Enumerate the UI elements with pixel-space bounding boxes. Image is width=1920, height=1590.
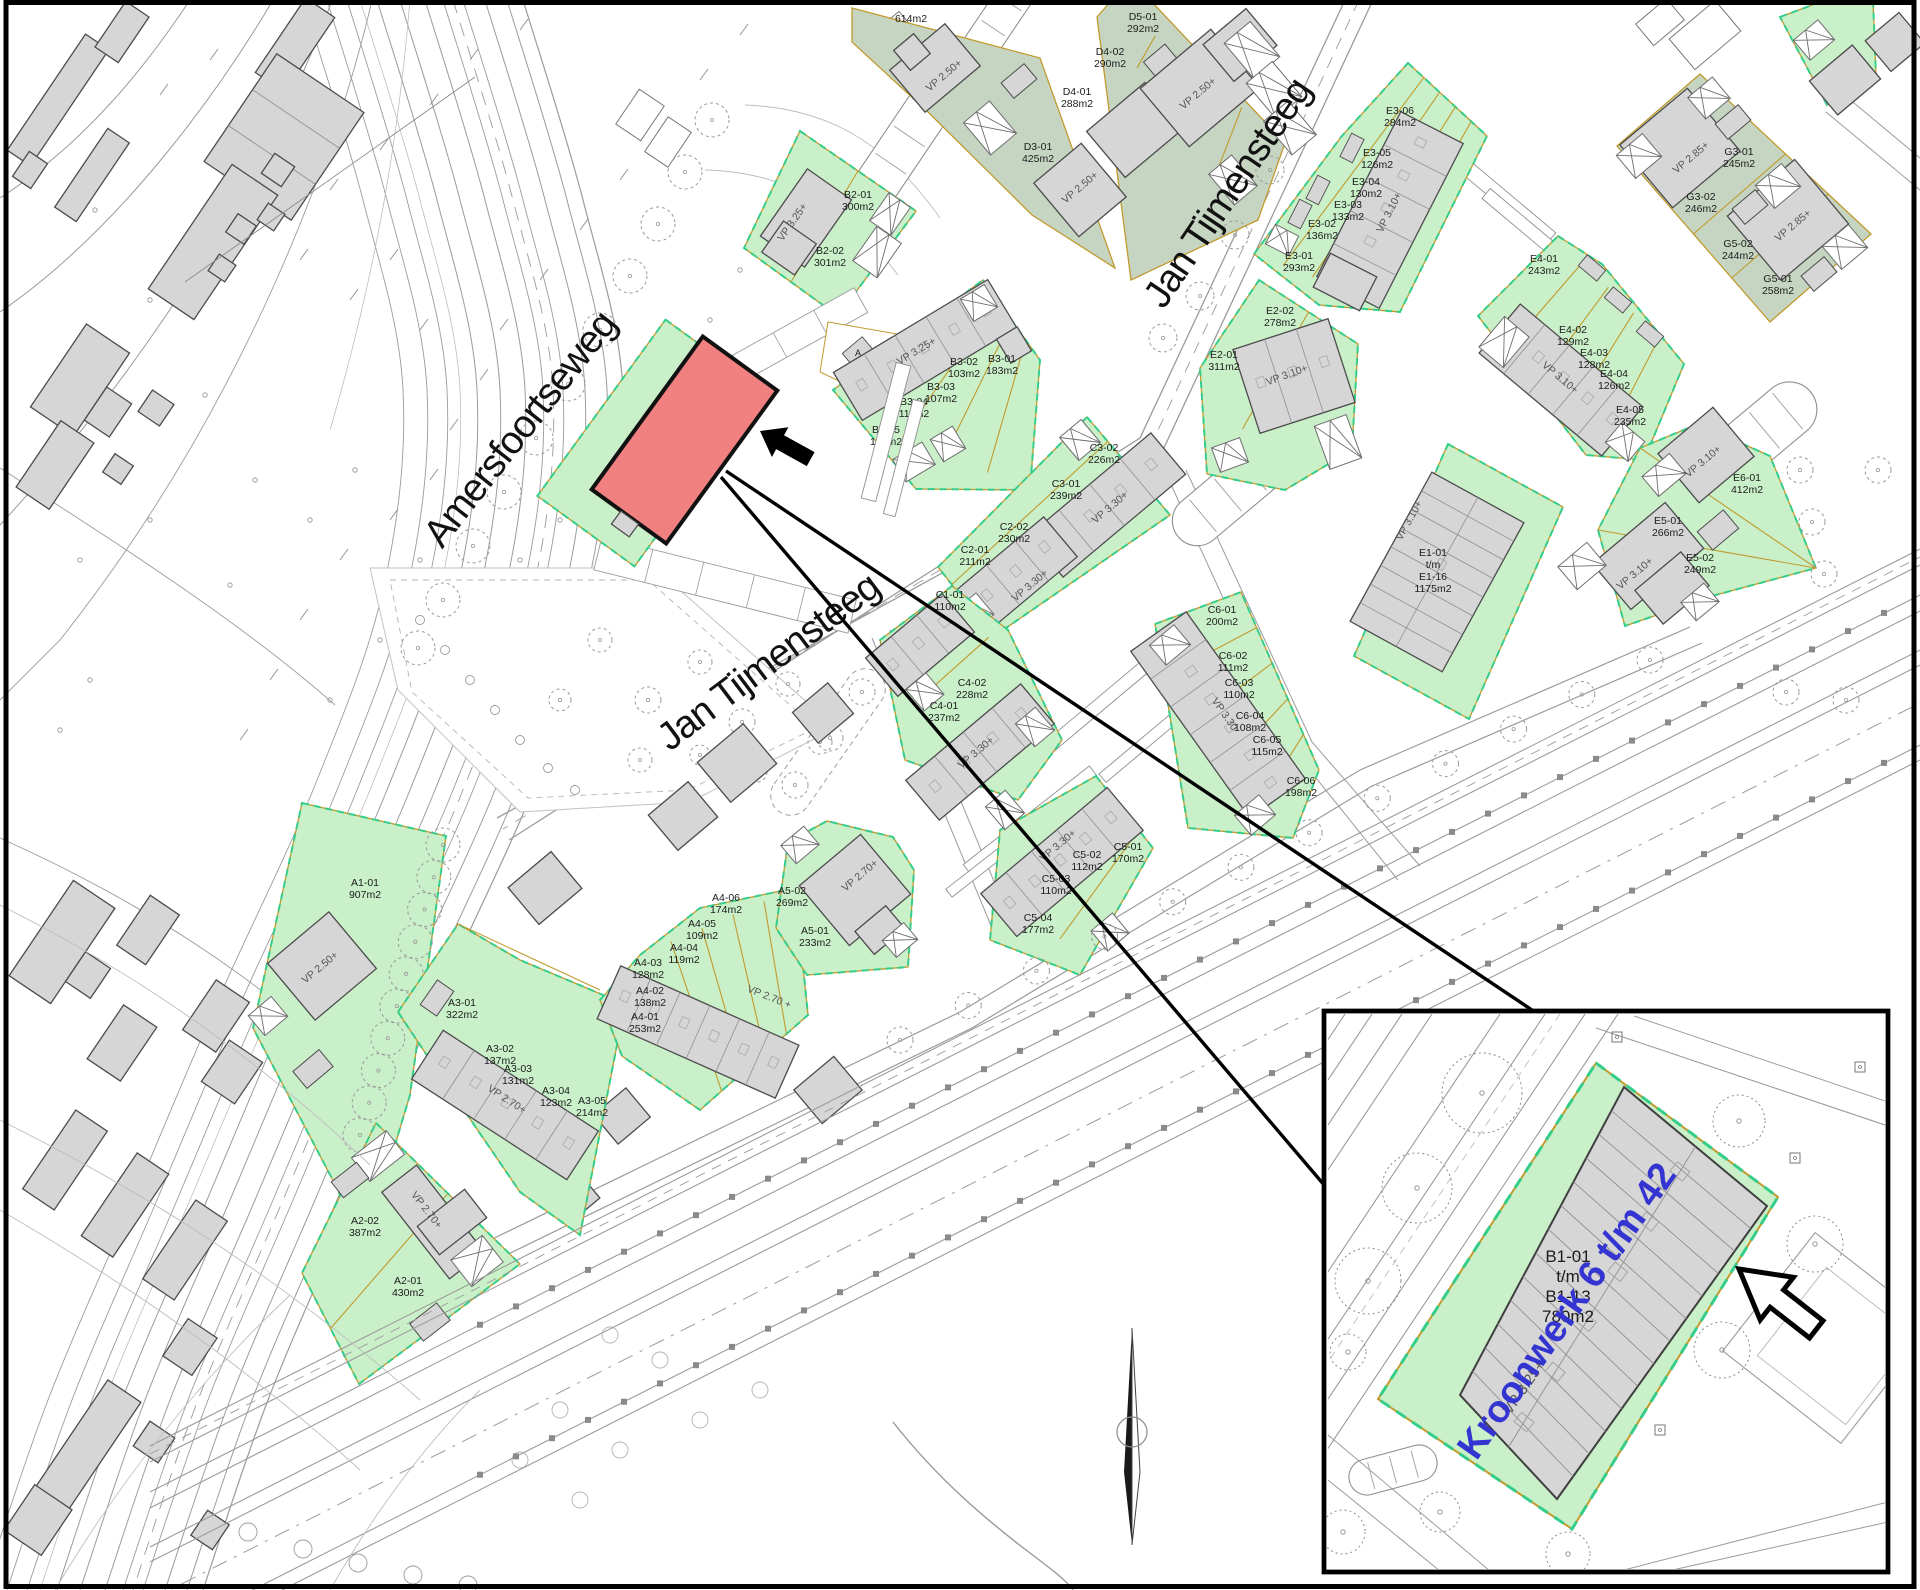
- svg-text:110m2: 110m2: [1040, 885, 1071, 897]
- svg-text:E4-01: E4-01: [1530, 253, 1558, 265]
- svg-text:C6-01: C6-01: [1208, 604, 1237, 616]
- svg-text:E3-04: E3-04: [1352, 176, 1380, 188]
- svg-text:110m2: 110m2: [934, 601, 965, 613]
- svg-text:B2-01: B2-01: [844, 189, 872, 201]
- svg-text:288m2: 288m2: [1061, 98, 1093, 110]
- svg-text:A2-02: A2-02: [351, 1215, 379, 1227]
- svg-text:237m2: 237m2: [928, 712, 960, 724]
- svg-text:A3-04: A3-04: [542, 1085, 570, 1097]
- svg-text:E3-06: E3-06: [1386, 105, 1414, 117]
- svg-text:292m2: 292m2: [1127, 23, 1159, 35]
- svg-text:A3-02: A3-02: [486, 1043, 514, 1055]
- svg-text:C6-04: C6-04: [1236, 710, 1265, 722]
- svg-text:B3-02: B3-02: [950, 356, 978, 368]
- svg-text:425m2: 425m2: [1022, 153, 1054, 165]
- svg-text:C4-01: C4-01: [930, 700, 959, 712]
- svg-text:A5-02: A5-02: [778, 885, 806, 897]
- svg-text:E3-02: E3-02: [1308, 218, 1336, 230]
- svg-text:226m2: 226m2: [1088, 454, 1120, 466]
- svg-text:C3-01: C3-01: [1052, 478, 1081, 490]
- svg-text:115m2: 115m2: [1251, 746, 1282, 758]
- svg-text:136m2: 136m2: [1306, 230, 1338, 242]
- svg-text:A3-03: A3-03: [504, 1063, 532, 1075]
- svg-text:D5-01: D5-01: [1129, 11, 1158, 23]
- svg-text:126m2: 126m2: [1361, 159, 1393, 171]
- svg-text:A3-01: A3-01: [448, 997, 476, 1009]
- svg-text:G5-02: G5-02: [1723, 238, 1752, 250]
- svg-text:107m2: 107m2: [925, 393, 957, 405]
- svg-text:E5-02: E5-02: [1686, 552, 1714, 564]
- svg-text:A3-05: A3-05: [578, 1095, 606, 1107]
- svg-text:C6-02: C6-02: [1219, 650, 1248, 662]
- svg-text:412m2: 412m2: [1731, 484, 1763, 496]
- svg-text:174m2: 174m2: [710, 904, 742, 916]
- svg-text:C5-02: C5-02: [1073, 849, 1102, 861]
- svg-text:A4-04: A4-04: [670, 942, 698, 954]
- svg-text:311m2: 311m2: [1208, 361, 1239, 373]
- svg-text:214m2: 214m2: [576, 1107, 608, 1119]
- svg-text:243m2: 243m2: [1528, 265, 1560, 277]
- svg-text:A4-06: A4-06: [712, 892, 740, 904]
- svg-text:245m2: 245m2: [1723, 158, 1755, 170]
- svg-text:128m2: 128m2: [632, 969, 664, 981]
- svg-text:D4-01: D4-01: [1063, 86, 1092, 98]
- svg-text:E4-05: E4-05: [1616, 404, 1644, 416]
- svg-text:249m2: 249m2: [1684, 564, 1716, 576]
- svg-text:228m2: 228m2: [956, 689, 988, 701]
- svg-text:C5-04: C5-04: [1024, 912, 1053, 924]
- svg-text:322m2: 322m2: [446, 1009, 478, 1021]
- svg-text:G3-02: G3-02: [1686, 191, 1715, 203]
- svg-text:A4-02: A4-02: [636, 985, 664, 997]
- svg-text:290m2: 290m2: [1094, 58, 1126, 70]
- svg-text:C2-02: C2-02: [1000, 521, 1029, 533]
- svg-text:269m2: 269m2: [776, 897, 808, 909]
- svg-text:A5-01: A5-01: [801, 925, 829, 937]
- svg-text:A4-03: A4-03: [634, 957, 662, 969]
- svg-text:E3-03: E3-03: [1334, 199, 1362, 211]
- svg-text:133m2: 133m2: [1332, 211, 1364, 223]
- svg-text:E1-01: E1-01: [1419, 547, 1447, 559]
- svg-text:266m2: 266m2: [1652, 527, 1684, 539]
- svg-text:301m2: 301m2: [814, 257, 846, 269]
- svg-text:278m2: 278m2: [1264, 317, 1296, 329]
- svg-text:235m2: 235m2: [1614, 416, 1646, 428]
- svg-text:119m2: 119m2: [668, 954, 699, 966]
- svg-text:103m2: 103m2: [948, 368, 980, 380]
- svg-text:230m2: 230m2: [998, 533, 1030, 545]
- svg-text:126m2: 126m2: [1598, 380, 1630, 392]
- svg-text:E4-02: E4-02: [1559, 324, 1587, 336]
- svg-text:E2-02: E2-02: [1266, 305, 1294, 317]
- svg-text:177m2: 177m2: [1022, 924, 1054, 936]
- svg-text:D4-02: D4-02: [1096, 46, 1125, 58]
- svg-text:C6-06: C6-06: [1287, 775, 1316, 787]
- svg-text:E5-01: E5-01: [1654, 515, 1682, 527]
- svg-text:C4-02: C4-02: [958, 677, 987, 689]
- svg-text:131m2: 131m2: [502, 1075, 534, 1087]
- svg-text:253m2: 253m2: [629, 1023, 661, 1035]
- svg-text:E6-01: E6-01: [1733, 472, 1761, 484]
- svg-text:387m2: 387m2: [349, 1227, 381, 1239]
- svg-text:E4-03: E4-03: [1580, 347, 1608, 359]
- svg-text:E1-16: E1-16: [1419, 571, 1447, 583]
- svg-text:198m2: 198m2: [1285, 787, 1317, 799]
- svg-text:B3-03: B3-03: [927, 381, 955, 393]
- svg-text:111m2: 111m2: [1218, 662, 1249, 674]
- svg-text:109m2: 109m2: [686, 930, 718, 942]
- svg-text:A1-01: A1-01: [351, 877, 379, 889]
- svg-text:E2-01: E2-01: [1210, 349, 1238, 361]
- svg-text:293m2: 293m2: [1283, 262, 1315, 274]
- svg-text:200m2: 200m2: [1206, 616, 1238, 628]
- svg-text:B2-02: B2-02: [816, 245, 844, 257]
- svg-text:300m2: 300m2: [842, 201, 874, 213]
- svg-text:614m2: 614m2: [895, 13, 927, 25]
- svg-text:B3-01: B3-01: [988, 353, 1016, 365]
- svg-text:E4-04: E4-04: [1600, 368, 1628, 380]
- svg-text:t/m: t/m: [1426, 559, 1441, 571]
- svg-text:233m2: 233m2: [799, 937, 831, 949]
- svg-text:1175m2: 1175m2: [1414, 583, 1451, 595]
- svg-text:123m2: 123m2: [540, 1097, 572, 1109]
- svg-text:C5-01: C5-01: [1114, 841, 1143, 853]
- svg-text:D3-01: D3-01: [1024, 141, 1053, 153]
- svg-text:211m2: 211m2: [959, 556, 990, 568]
- svg-text:C1-01: C1-01: [936, 589, 965, 601]
- svg-text:C3-02: C3-02: [1090, 442, 1119, 454]
- svg-text:170m2: 170m2: [1112, 853, 1144, 865]
- svg-text:258m2: 258m2: [1762, 285, 1794, 297]
- svg-text:C6-05: C6-05: [1253, 734, 1282, 746]
- svg-text:A4-01: A4-01: [631, 1011, 659, 1023]
- svg-text:244m2: 244m2: [1722, 250, 1754, 262]
- svg-text:E3-05: E3-05: [1363, 147, 1391, 159]
- svg-text:A2-01: A2-01: [394, 1275, 422, 1287]
- svg-text:112m2: 112m2: [1071, 861, 1102, 873]
- svg-text:110m2: 110m2: [1223, 689, 1254, 701]
- svg-text:G3-01: G3-01: [1724, 146, 1753, 158]
- svg-text:C2-01: C2-01: [961, 544, 990, 556]
- svg-text:246m2: 246m2: [1685, 203, 1717, 215]
- svg-text:284m2: 284m2: [1384, 117, 1416, 129]
- svg-text:239m2: 239m2: [1050, 490, 1082, 502]
- svg-text:907m2: 907m2: [349, 889, 381, 901]
- svg-text:C6-03: C6-03: [1225, 677, 1254, 689]
- svg-text:183m2: 183m2: [986, 365, 1018, 377]
- svg-text:A4-05: A4-05: [688, 918, 716, 930]
- svg-text:E3-01: E3-01: [1285, 250, 1313, 262]
- svg-text:G5-01: G5-01: [1763, 273, 1792, 285]
- svg-text:138m2: 138m2: [634, 997, 666, 1009]
- svg-text:430m2: 430m2: [392, 1287, 424, 1299]
